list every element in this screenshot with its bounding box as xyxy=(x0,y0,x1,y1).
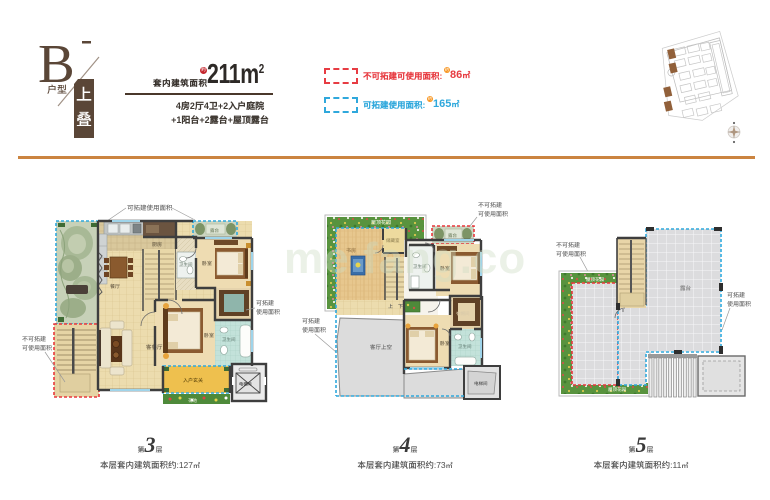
svg-text:露台: 露台 xyxy=(210,228,219,234)
svg-text:电梯间: 电梯间 xyxy=(239,382,252,388)
svg-text:使用面积: 使用面积 xyxy=(302,325,326,334)
svg-text:卧室: 卧室 xyxy=(202,260,212,267)
svg-text:客厅上空: 客厅上空 xyxy=(370,343,393,351)
svg-text:可使用面积: 可使用面积 xyxy=(22,343,52,352)
svg-text:卫生间: 卫生间 xyxy=(458,344,472,350)
svg-text:卧室: 卧室 xyxy=(440,340,450,347)
svg-text:入户玄关: 入户玄关 xyxy=(183,377,203,384)
svg-text:上: 上 xyxy=(388,303,393,310)
svg-text:屋顶花园: 屋顶花园 xyxy=(371,219,391,226)
svg-text:可拓建: 可拓建 xyxy=(727,290,745,299)
svg-text:卫生间: 卫生间 xyxy=(179,262,193,268)
svg-text:可拓建使用面积: 可拓建使用面积 xyxy=(127,202,173,212)
svg-text:花池: 花池 xyxy=(188,398,197,404)
svg-text:下: 下 xyxy=(398,303,403,310)
svg-text:卫生间: 卫生间 xyxy=(222,337,236,343)
svg-text:使用面积: 使用面积 xyxy=(727,299,751,308)
svg-text:叠: 叠 xyxy=(76,106,92,130)
svg-text:电梯间: 电梯间 xyxy=(474,381,488,387)
svg-text:屋顶花园: 屋顶花园 xyxy=(608,387,626,393)
svg-text:餐厅: 餐厅 xyxy=(110,283,120,290)
svg-text:不可拓建: 不可拓建 xyxy=(478,200,502,209)
svg-text:使用面积: 使用面积 xyxy=(256,307,280,316)
svg-text:上: 上 xyxy=(76,81,92,105)
svg-text:可拓建: 可拓建 xyxy=(256,298,274,307)
svg-text:户型: 户型 xyxy=(47,81,67,96)
svg-text:可使用面积: 可使用面积 xyxy=(478,209,508,218)
svg-text:不可拓建: 不可拓建 xyxy=(556,240,580,249)
svg-text:可拓建: 可拓建 xyxy=(302,316,320,325)
svg-text:厨房: 厨房 xyxy=(152,241,162,248)
svg-text:可使用面积: 可使用面积 xyxy=(556,249,586,258)
svg-text:不可拓建: 不可拓建 xyxy=(22,334,46,343)
svg-text:露台: 露台 xyxy=(680,284,692,292)
svg-text:卧室: 卧室 xyxy=(204,332,214,339)
svg-text:衣帽间: 衣帽间 xyxy=(456,311,470,317)
svg-text:屋顶花园: 屋顶花园 xyxy=(586,277,604,283)
